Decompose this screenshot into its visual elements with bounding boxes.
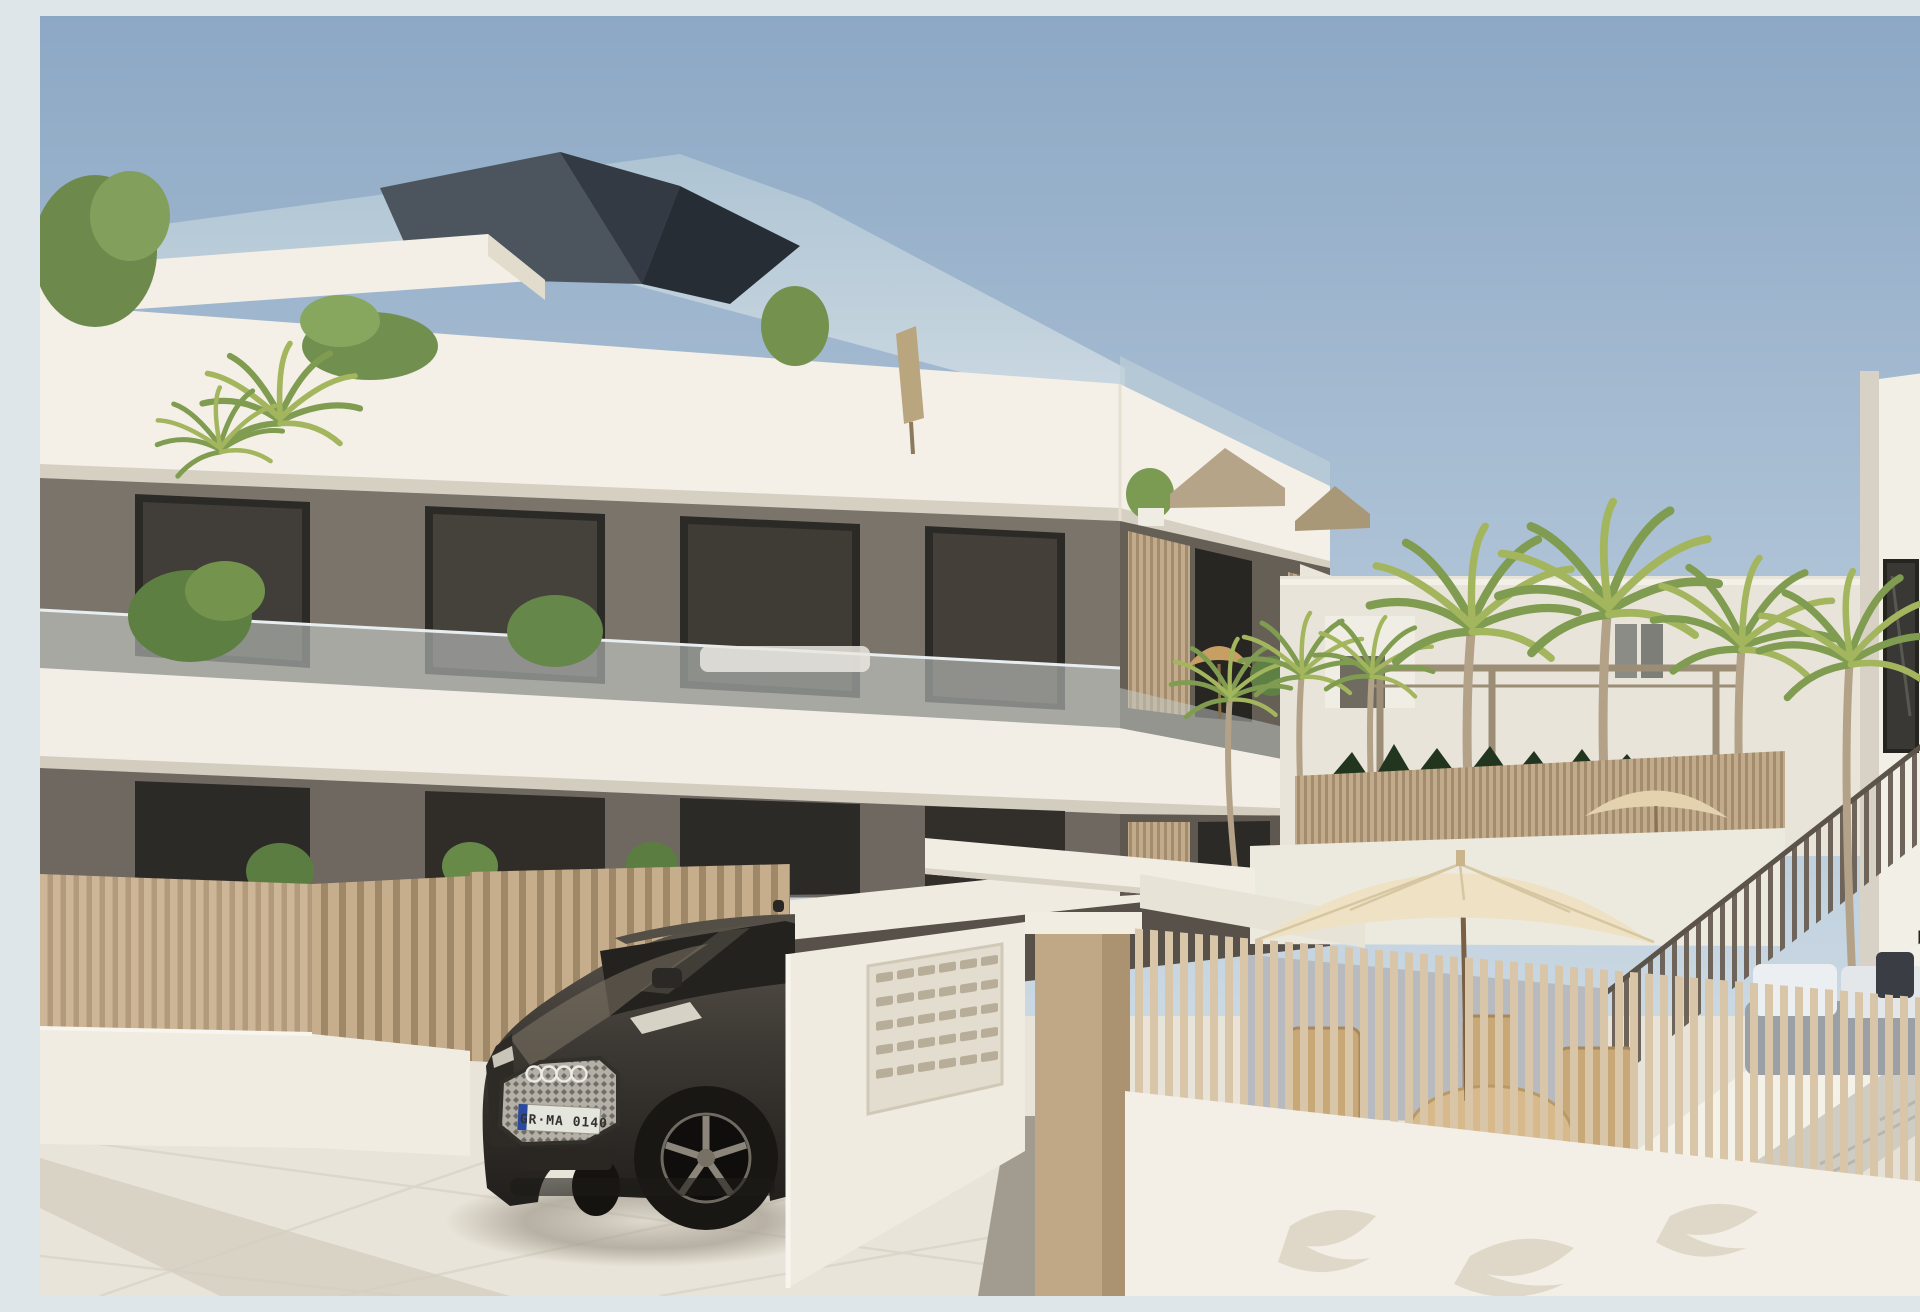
fence-left-near	[312, 876, 470, 1051]
fence-base-wall	[40, 1028, 470, 1156]
fence-left-far	[40, 874, 312, 1034]
mailbox-panel	[868, 944, 1002, 1114]
street-fence-left	[40, 874, 470, 1156]
roof-antenna	[773, 900, 784, 912]
architectural-render: GR·MA 0140	[40, 16, 1920, 1296]
license-plate: GR·MA 0140	[517, 1104, 608, 1135]
side-mirror	[652, 968, 682, 988]
front-wheel	[634, 1086, 778, 1230]
rocker-shadow	[510, 1178, 775, 1196]
air-intake	[520, 1148, 612, 1170]
sofa-cushion-dark	[1876, 952, 1914, 998]
render-canvas: GR·MA 0140	[40, 16, 1920, 1296]
right-building-return	[1860, 371, 1879, 1031]
pillar-cap	[1025, 912, 1142, 934]
umbrella-finial	[1456, 850, 1465, 866]
